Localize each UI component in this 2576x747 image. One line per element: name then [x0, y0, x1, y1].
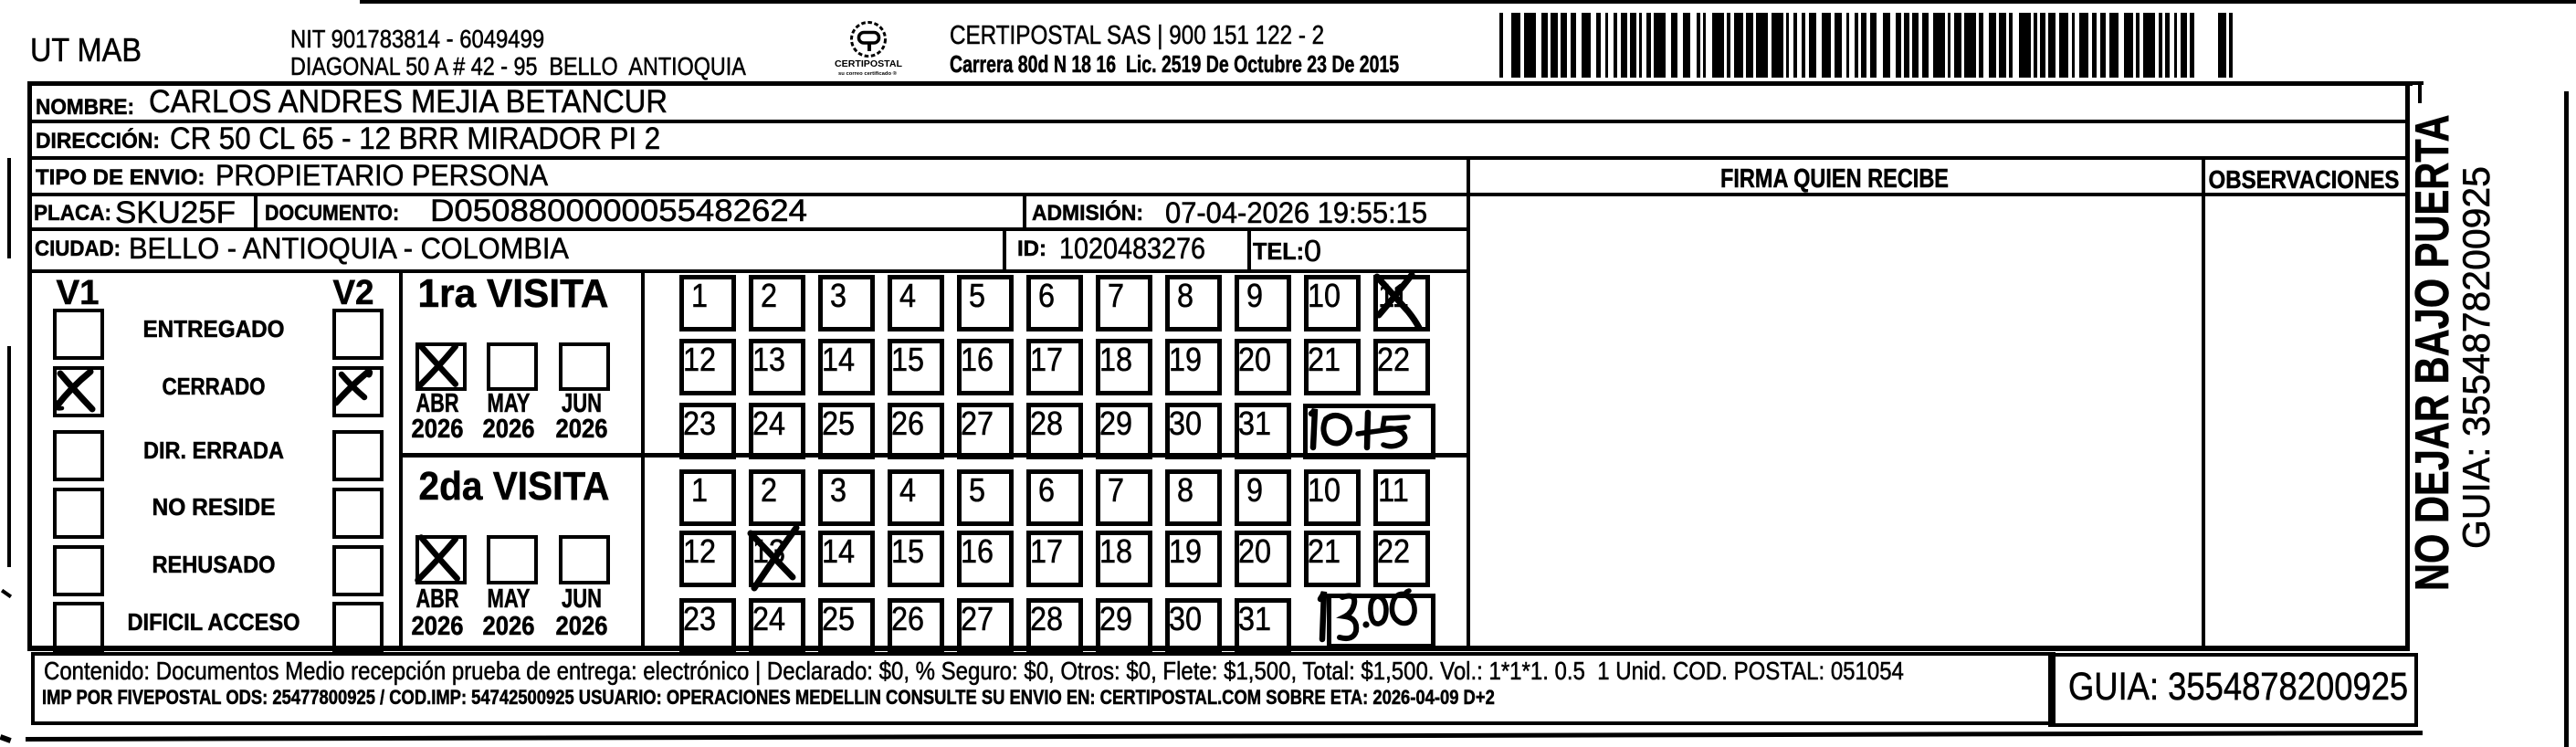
svg-text:su correo certificado ®: su correo certificado ® — [838, 70, 897, 77]
svg-text:CERTIPOSTAL: CERTIPOSTAL — [835, 59, 902, 69]
